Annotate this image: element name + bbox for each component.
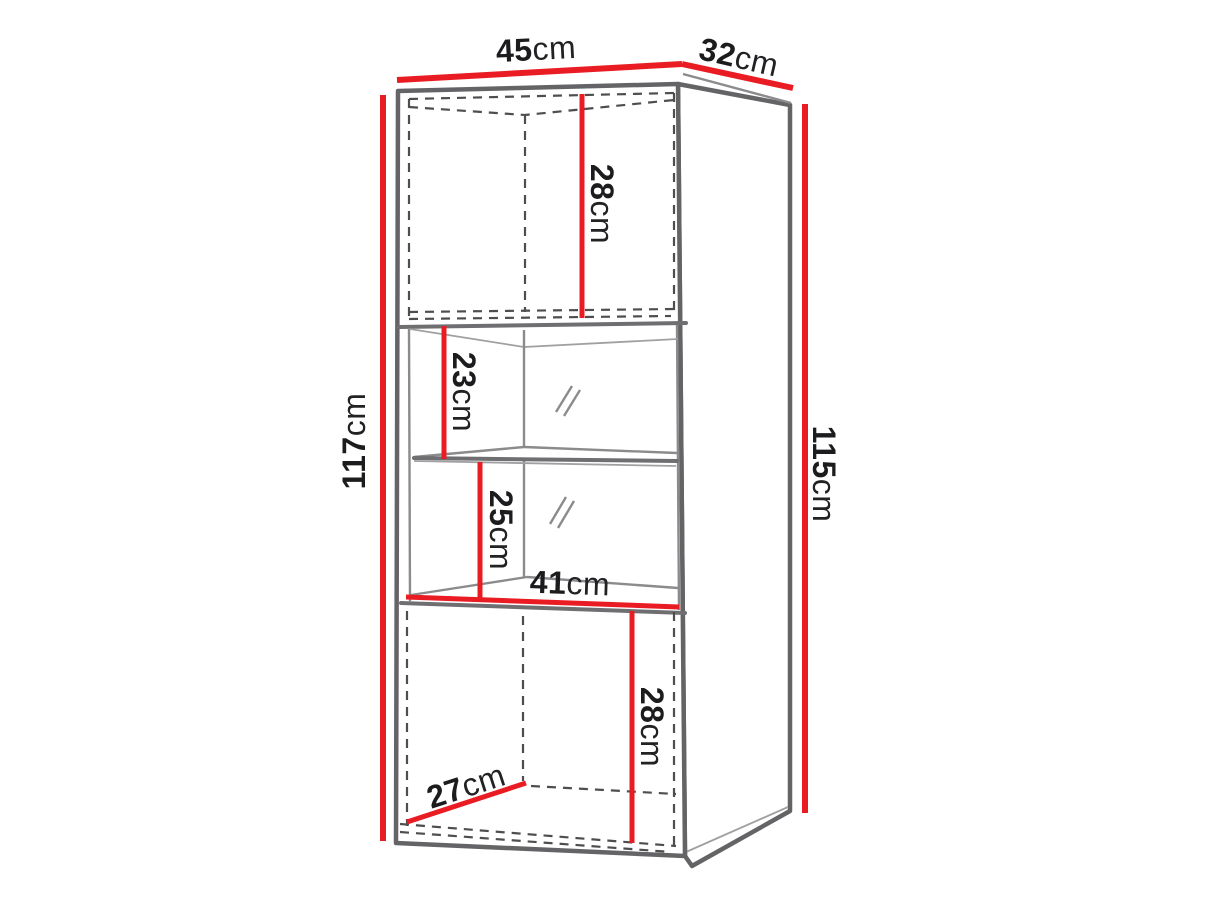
dim-label-height-side: 115cm [806,426,842,523]
cabinet-side-panel [678,84,790,866]
dim-label-height-front: 117cm [336,393,372,490]
diagram-canvas: 45cm 32cm 117cm 115cm 28cm 23cm 25cm 41c… [0,0,1214,911]
dim-label-bottom-door-height: 28cm [634,687,670,767]
dim-label-upper-compartment-height: 23cm [446,352,482,432]
dim-label-interior-width: 41cm [529,564,610,603]
interior-left-wall-edge [409,328,410,602]
dim-label-top-door-height: 28cm [584,164,620,244]
dim-label-lower-compartment-height: 25cm [483,490,519,570]
dim-label-width: 45cm [495,29,577,69]
furniture-dimension-diagram: 45cm 32cm 117cm 115cm 28cm 23cm 25cm 41c… [0,0,1214,911]
